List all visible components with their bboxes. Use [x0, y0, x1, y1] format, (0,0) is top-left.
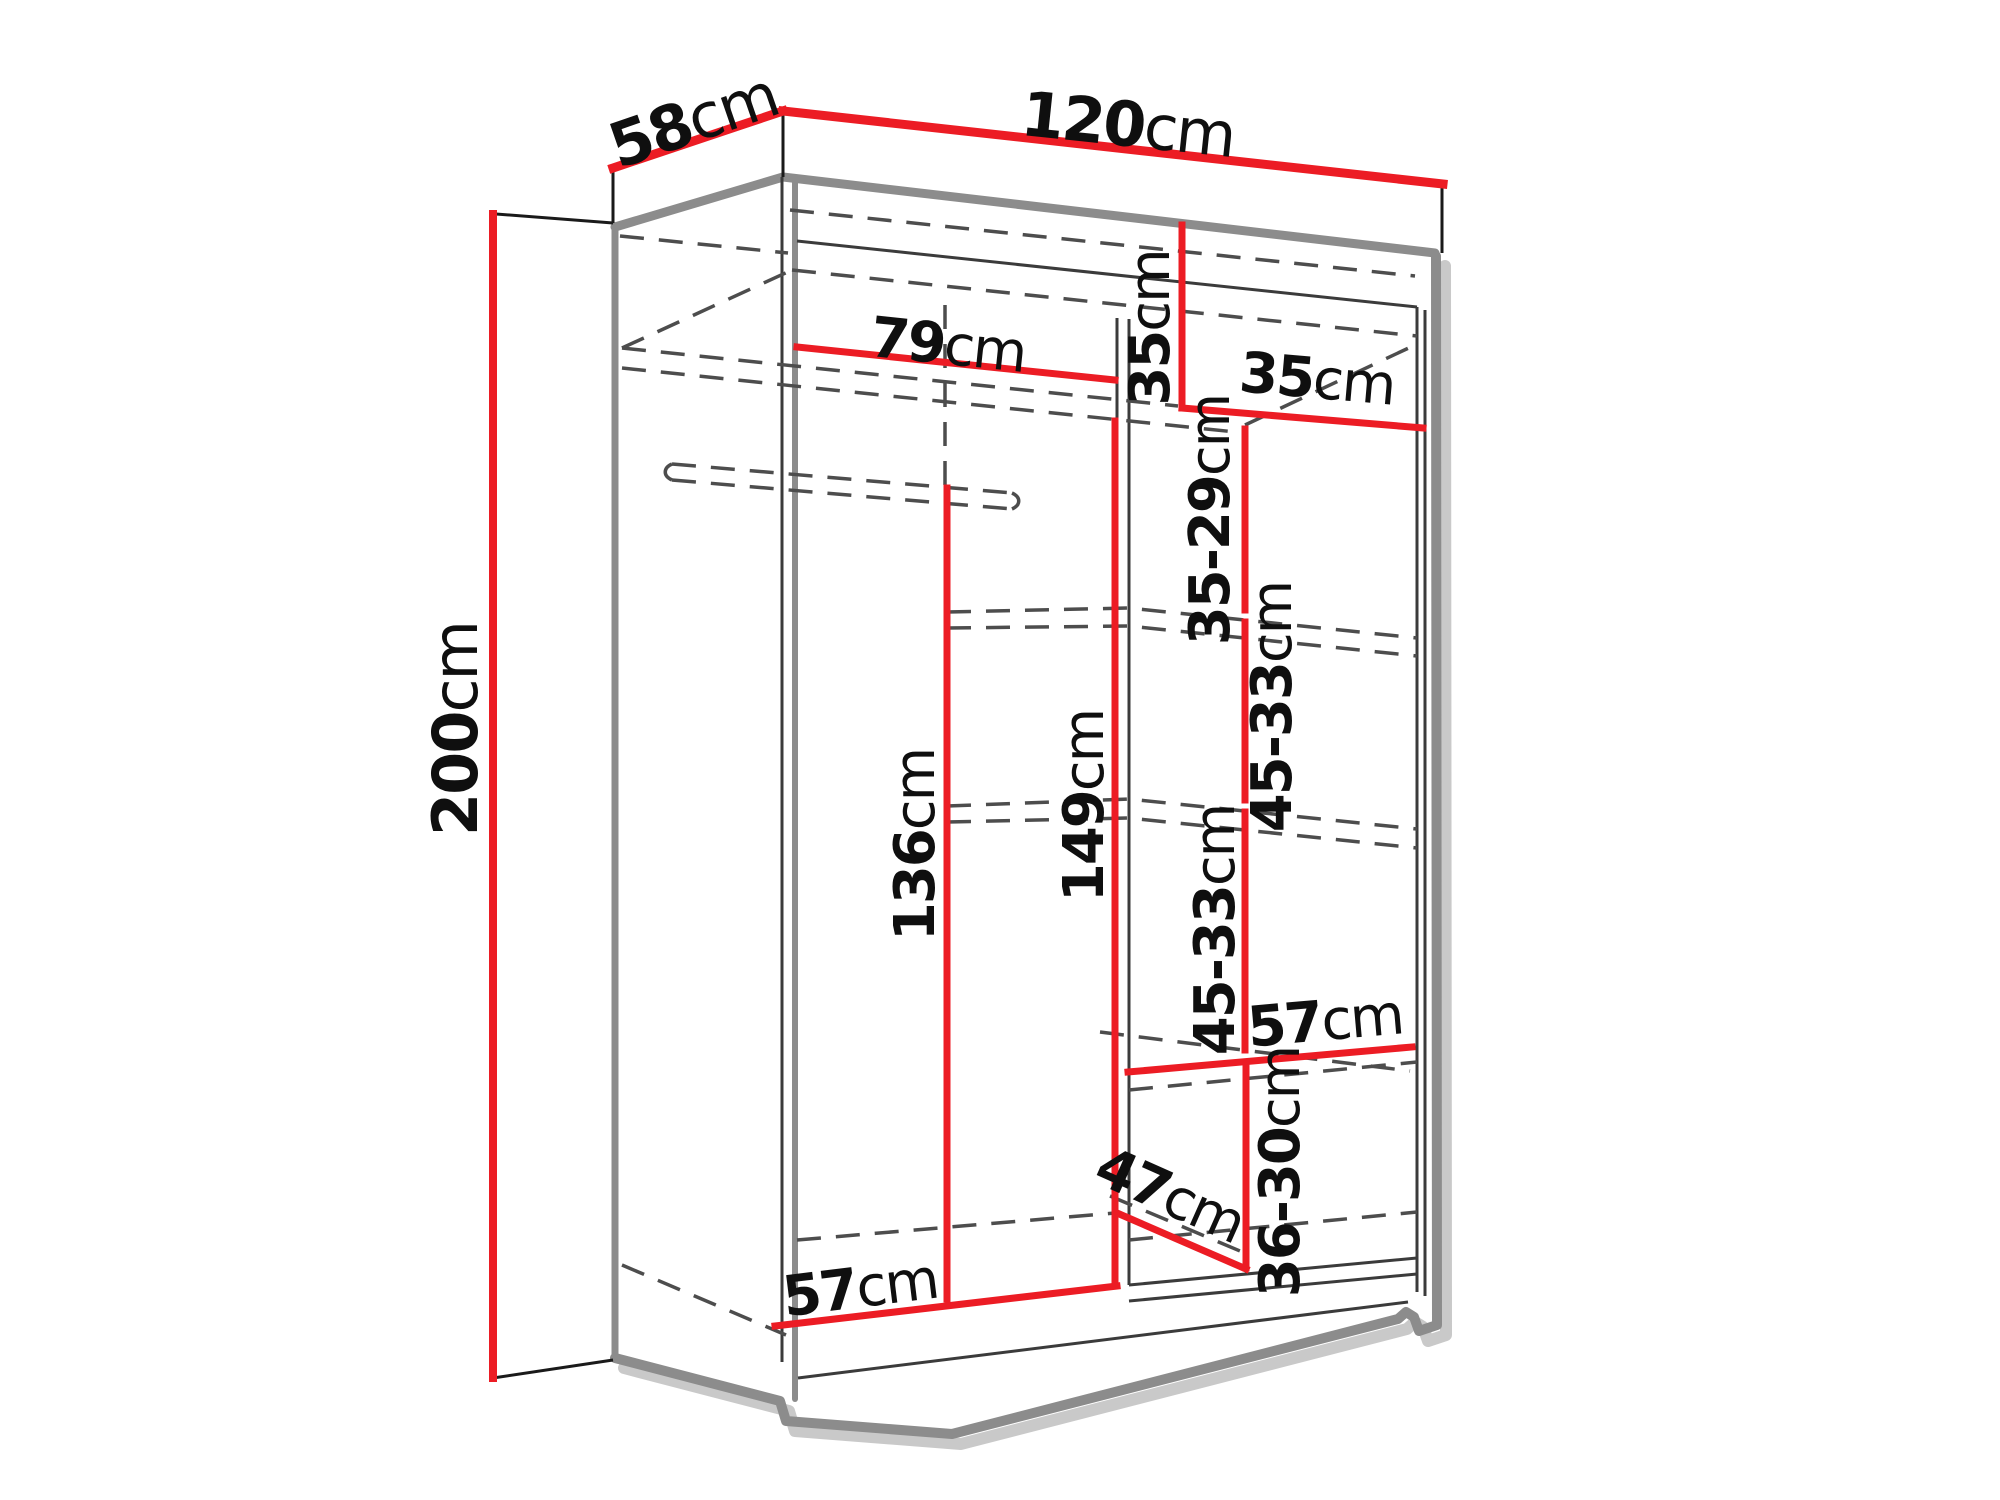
hanging-rod-right-cap — [1012, 493, 1019, 509]
dim-label-shelf-gap-2: 45-33cm — [1240, 582, 1305, 832]
dim-label-upper-right-height: 35cm — [1118, 250, 1183, 405]
top-panel-front-edge — [615, 177, 1435, 253]
height-bottom-extension — [493, 1360, 613, 1378]
dim-label-shelf-gap-3: 45-33cm — [1183, 805, 1248, 1055]
dim-label-depth-top: 58cm — [599, 57, 786, 182]
dim-label-bottom-width: 57cm — [779, 1246, 941, 1329]
top-panel-hidden-side-edge — [620, 236, 788, 253]
wardrobe-dimension-diagram: 58cm 120cm 200cm 79cm 35cm 35cm 35-29cm … — [0, 0, 2000, 1500]
dim-label-shelf-gap-1: 35-29cm — [1178, 395, 1243, 645]
left-floor-hidden-edge — [797, 1213, 1115, 1240]
top-shelf-left-depth-edge — [622, 270, 792, 348]
hanging-rod-top — [672, 464, 1012, 493]
hanging-rod-left-cap — [665, 464, 672, 480]
dimension-labels: 58cm 120cm 200cm 79cm 35cm 35cm 35-29cm … — [419, 57, 1406, 1329]
left-floor-depth-edge — [622, 1265, 786, 1335]
height-top-extension — [496, 214, 613, 223]
diagram-canvas: 58cm 120cm 200cm 79cm 35cm 35cm 35-29cm … — [0, 0, 2000, 1500]
dim-label-width-top: 120cm — [1018, 77, 1238, 172]
interior-top-back-edge — [797, 241, 1417, 307]
dim-label-hanging-height: 136cm — [883, 749, 948, 941]
dim-label-height-left: 200cm — [419, 622, 492, 836]
dim-label-shelf-gap-4: 36-30cm — [1248, 1047, 1313, 1297]
bottom-and-right-edge — [615, 256, 1437, 1434]
dim-label-middle-height: 149cm — [1052, 710, 1117, 902]
dim-label-upper-right-width: 35cm — [1237, 340, 1397, 418]
dim-label-hanging-width: 79cm — [867, 305, 1028, 386]
hanging-rod-bottom — [672, 480, 1012, 509]
